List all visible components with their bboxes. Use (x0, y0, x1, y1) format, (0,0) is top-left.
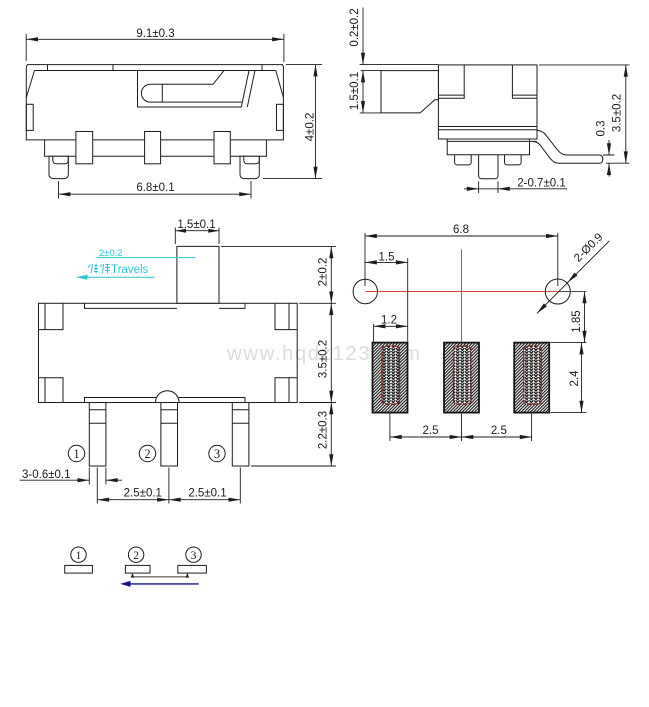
svg-text:2±0.2: 2±0.2 (99, 248, 123, 259)
svg-text:1.5±0.1: 1.5±0.1 (349, 72, 361, 110)
svg-text:1: 1 (76, 550, 82, 562)
svg-text:3-0.6±0.1: 3-0.6±0.1 (22, 469, 71, 481)
svg-text:2-0.7±0.1: 2-0.7±0.1 (517, 178, 566, 190)
svg-text:1.5±0.1: 1.5±0.1 (177, 219, 215, 231)
svg-text:6.8±0.1: 6.8±0.1 (136, 182, 174, 194)
svg-text:0.2±0.2: 0.2±0.2 (349, 8, 361, 46)
svg-text:2.2±0.3: 2.2±0.3 (317, 411, 329, 449)
svg-text:2: 2 (133, 550, 139, 562)
svg-text:1.85: 1.85 (571, 310, 583, 332)
svg-text:3: 3 (191, 550, 197, 562)
svg-text:2: 2 (144, 447, 150, 461)
svg-text:Travels: Travels (111, 264, 149, 276)
svg-text:3.5±0.2: 3.5±0.2 (317, 340, 329, 378)
svg-text:3.5±0.2: 3.5±0.2 (612, 94, 624, 132)
svg-text:2±0.2: 2±0.2 (317, 258, 329, 287)
svg-text:2.5: 2.5 (423, 425, 439, 437)
svg-text:0.3: 0.3 (596, 121, 608, 137)
svg-text:3: 3 (214, 447, 220, 461)
svg-text:1.2: 1.2 (381, 315, 397, 327)
svg-text:4±0.2: 4±0.2 (305, 113, 317, 142)
svg-text:2.5±0.1: 2.5±0.1 (188, 487, 226, 499)
svg-text:9.1±0.3: 9.1±0.3 (136, 28, 174, 40)
svg-text:2.5: 2.5 (491, 425, 507, 437)
svg-text:1: 1 (73, 447, 79, 461)
svg-text:2.4: 2.4 (569, 370, 581, 387)
svg-text:2.5±0.1: 2.5±0.1 (124, 487, 162, 499)
svg-text:1.5: 1.5 (379, 251, 395, 263)
svg-text:6.8: 6.8 (453, 224, 469, 236)
